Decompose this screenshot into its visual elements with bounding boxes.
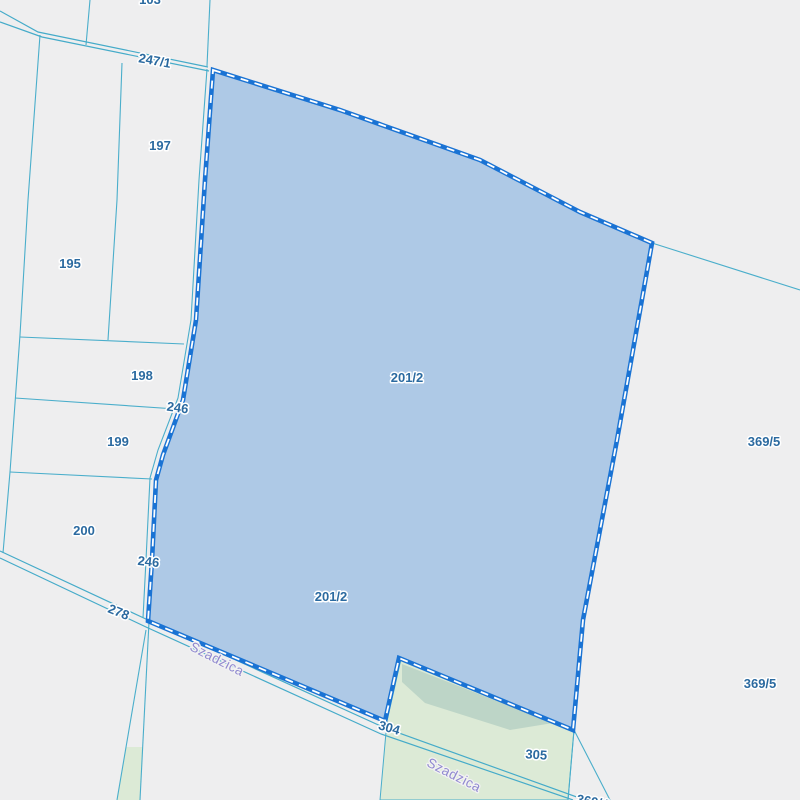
parcel-label-246-b: 246	[137, 553, 160, 570]
parcel-label-197: 197	[149, 138, 171, 153]
parcel-label-198: 198	[131, 368, 153, 383]
parcel-label-199: 199	[107, 434, 129, 449]
parcel-label-195: 195	[59, 256, 81, 271]
parcel-label-369-5-a: 369/5	[748, 434, 781, 449]
parcel-label-201-2-b: 201/2	[315, 589, 348, 604]
cadastral-map-svg: 103 247/1 197 195 198 246 199 200 246 27…	[0, 0, 800, 800]
map-canvas[interactable]: 103 247/1 197 195 198 246 199 200 246 27…	[0, 0, 800, 800]
parcel-label-305: 305	[525, 746, 548, 762]
parcel-label-200: 200	[73, 523, 95, 538]
parcel-label-103-partial: 103	[139, 0, 161, 7]
parcel-label-246-a: 246	[166, 399, 190, 417]
parcel-label-369-5-b: 369/5	[744, 676, 777, 691]
parcel-label-201-2-a: 201/2	[391, 370, 424, 385]
